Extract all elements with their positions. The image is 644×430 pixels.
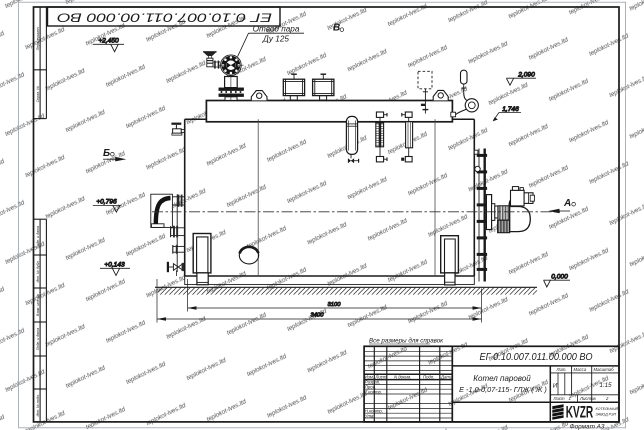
svg-text:Б: Б (103, 148, 110, 159)
svg-text:Листов: Листов (579, 396, 596, 401)
svg-text:Подп. и дата: Подп. и дата (36, 226, 40, 249)
svg-text:КОТЕЛЬНЫЙ: КОТЕЛЬНЫЙ (596, 407, 619, 411)
svg-text:+0,143: +0,143 (104, 261, 125, 268)
svg-text:N докум.: N докум. (394, 374, 411, 379)
svg-text:ЗАВОД РЭП: ЗАВОД РЭП (596, 413, 617, 417)
svg-text:Инв. № подл.: Инв. № подл. (36, 394, 40, 416)
svg-text:В: В (333, 23, 340, 34)
svg-text:Лит.: Лит. (556, 367, 567, 372)
svg-text:3400: 3400 (311, 313, 325, 319)
svg-text:Лист: Лист (553, 396, 565, 401)
svg-text:Взам. инв. №: Взам. инв. № (36, 294, 40, 316)
svg-text:1,746: 1,746 (502, 106, 519, 113)
svg-text:Масштаб: Масштаб (594, 367, 615, 372)
svg-text:Котел паровой: Котел паровой (473, 374, 531, 383)
svg-text:Справ. №: Справ. № (36, 86, 40, 102)
svg-text:3100: 3100 (328, 302, 342, 308)
svg-text:Формат А3: Формат А3 (570, 424, 605, 430)
svg-text:+0,796: +0,796 (96, 199, 117, 206)
svg-text:Инв. № дубл.: Инв. № дубл. (36, 260, 40, 282)
svg-text:Все размеры для справок: Все размеры для справок (369, 337, 444, 344)
svg-text:Подп. и дата: Подп. и дата (36, 328, 40, 351)
svg-text:А: А (563, 198, 571, 209)
svg-text:ЕГ 0.10.007.011.00.000 ВО: ЕГ 0.10.007.011.00.000 ВО (480, 351, 593, 363)
svg-text:0,000: 0,000 (551, 273, 568, 280)
svg-text:+2,450: +2,450 (98, 38, 119, 45)
svg-text:1:15: 1:15 (599, 382, 612, 389)
svg-text:Перв. примен.: Перв. примен. (36, 26, 40, 50)
svg-text:Дата: Дата (440, 374, 453, 379)
svg-text:2,090: 2,090 (517, 71, 535, 78)
svg-text:Т.контр.: Т.контр. (365, 389, 382, 394)
svg-text:Ду 125: Ду 125 (262, 35, 289, 44)
svg-text:Е -1,0-0,07-115- ГЛЖ ( Ж ): Е -1,0-0,07-115- ГЛЖ ( Ж ) (459, 385, 547, 394)
svg-text:ЕГ 0.10.007.011.00.000 ВО: ЕГ 0.10.007.011.00.000 ВО (57, 11, 272, 25)
svg-text:Подп.: Подп. (423, 374, 434, 379)
svg-text:Отвод пара: Отвод пара (253, 25, 300, 34)
svg-text:KVZR: KVZR (566, 404, 594, 422)
svg-text:Масса: Масса (574, 367, 587, 372)
svg-text:И: И (553, 382, 558, 389)
svg-text:Утв.: Утв. (365, 413, 375, 418)
